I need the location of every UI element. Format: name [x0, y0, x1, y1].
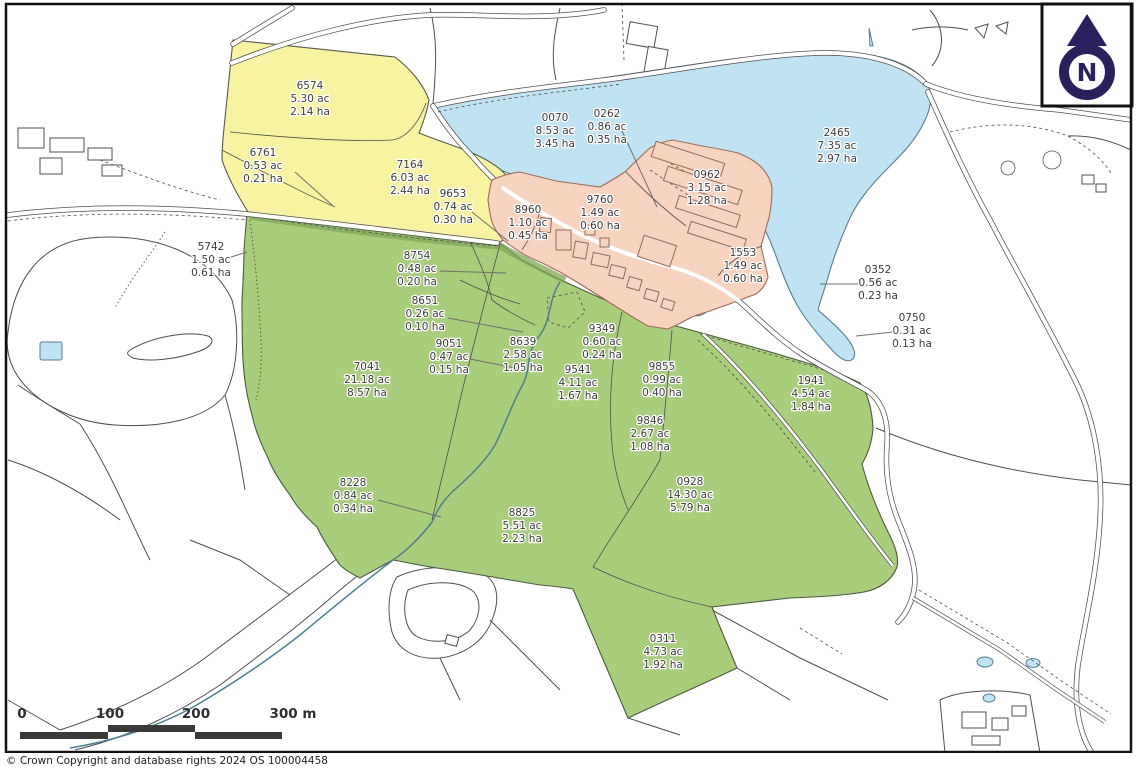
scale-tick-label: 0 — [17, 706, 26, 722]
scale-tick-label: 100 — [96, 706, 124, 722]
os-parcel-map-page: 65745.30 ac2.14 ha67610.53 ac0.21 ha7164… — [0, 0, 1137, 774]
scale-bar-segment — [20, 732, 108, 739]
north-arrow: N — [1042, 4, 1132, 106]
scale-tick-label: 300 m — [270, 706, 317, 722]
copyright-text: © Crown Copyright and database rights 20… — [6, 755, 1131, 767]
scale-tick-label: 200 — [182, 706, 210, 722]
scale-bar-segment — [108, 725, 195, 732]
scale-bar-segment — [195, 732, 282, 739]
map-canvas: 65745.30 ac2.14 ha67610.53 ac0.21 ha7164… — [0, 0, 1137, 753]
north-label: N — [1077, 58, 1098, 87]
